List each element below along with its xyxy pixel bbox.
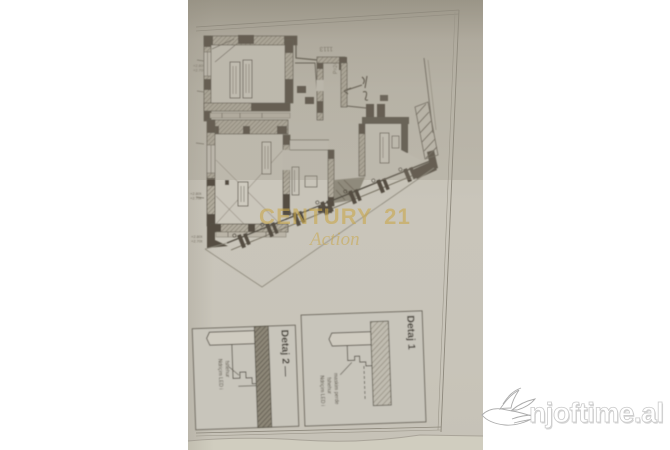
- svg-text:+2.70t: +2.70t: [190, 196, 202, 201]
- svg-text:+2.70t: +2.70t: [191, 239, 203, 244]
- svg-text:maskim perde: maskim perde: [332, 373, 339, 405]
- svg-text:Detaj 2 —: Detaj 2 —: [278, 329, 292, 377]
- svg-text:Ndriçim LED i: Ndriçim LED i: [318, 375, 325, 406]
- svg-text:njoftime.al: njoftime.al: [529, 397, 664, 428]
- svg-text:Action: Action: [308, 229, 360, 250]
- svg-text:fshehur: fshehur: [325, 377, 332, 394]
- svg-text:CENTURY 21: CENTURY 21: [259, 204, 411, 229]
- svg-text:Ndriçim LED i: Ndriçim LED i: [216, 359, 223, 390]
- svg-text:Detaj 1: Detaj 1: [404, 315, 417, 350]
- svg-text:fshehur: fshehur: [223, 361, 230, 378]
